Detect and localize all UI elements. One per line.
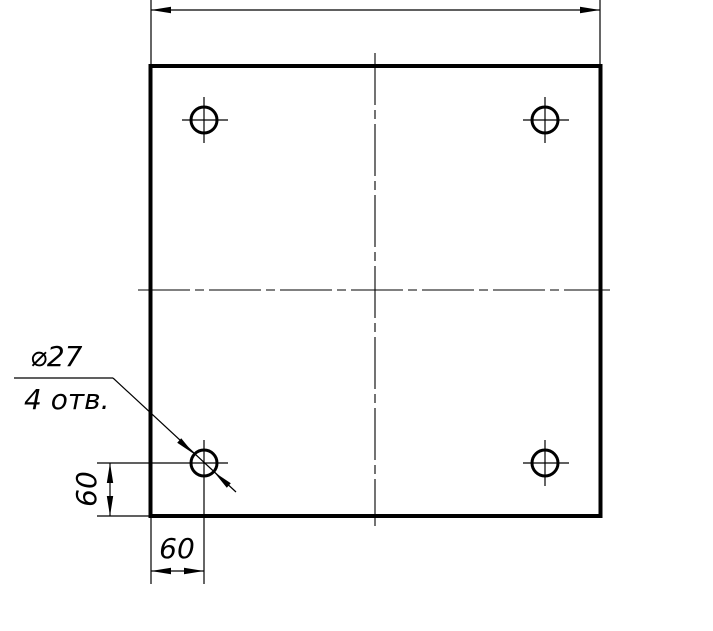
arrowhead-top-right: [580, 7, 600, 13]
arrowhead-right: [184, 568, 204, 574]
arrowhead-top-left: [151, 7, 171, 13]
holes-count-label: 4 отв.: [24, 383, 110, 416]
technical-drawing-canvas: ⌀27 4 отв. 60 60: [0, 0, 713, 631]
dimension-text-left: 60: [70, 471, 103, 507]
dimension-left-offset: 60: [70, 463, 151, 516]
plate-drawing: ⌀27 4 отв. 60 60: [0, 0, 713, 631]
arrowhead-up: [107, 463, 113, 483]
arrowhead-down: [107, 496, 113, 516]
hole-top-left: [182, 97, 228, 143]
arrowhead-left: [151, 568, 171, 574]
dimension-bottom-offset: 60: [151, 518, 204, 584]
leader-arrowhead-upper: [177, 438, 194, 454]
hole-bottom-right: [523, 440, 569, 486]
dimension-text-bottom: 60: [159, 532, 195, 565]
leader-arrowhead-lower: [214, 472, 231, 488]
hole-diameter-callout: ⌀27 4 отв.: [14, 340, 236, 492]
diameter-label: ⌀27: [30, 340, 83, 373]
hole-top-right: [523, 97, 569, 143]
